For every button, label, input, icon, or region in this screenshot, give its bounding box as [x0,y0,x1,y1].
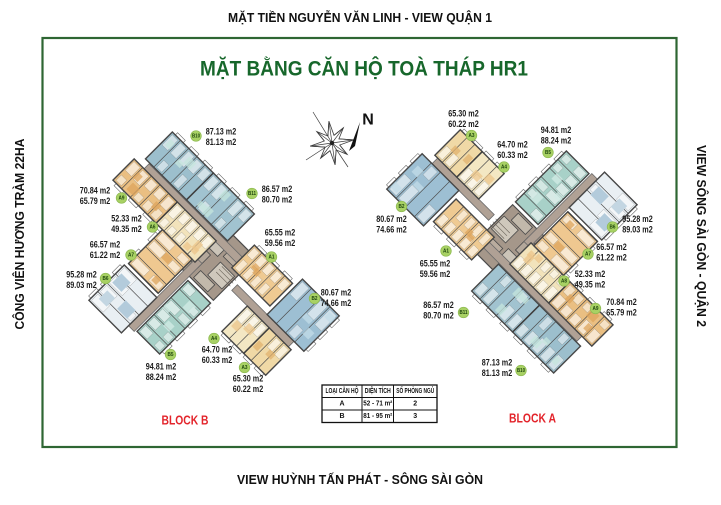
svg-text:59.56 m2: 59.56 m2 [420,269,451,279]
svg-text:49.35 m2: 49.35 m2 [111,224,142,234]
svg-text:64.70 m2: 64.70 m2 [497,140,528,150]
svg-text:94.81 m2: 94.81 m2 [541,125,572,135]
svg-text:74.66 m2: 74.66 m2 [321,298,352,308]
svg-text:49.35 m2: 49.35 m2 [575,280,606,290]
svg-text:A4: A4 [501,165,507,171]
svg-text:88.24 m2: 88.24 m2 [541,136,572,146]
svg-text:70.84 m2: 70.84 m2 [606,297,637,307]
svg-text:80.70 m2: 80.70 m2 [262,195,293,205]
svg-text:80.67 m2: 80.67 m2 [321,288,352,298]
svg-text:61.22 m2: 61.22 m2 [596,253,627,263]
svg-text:65.30 m2: 65.30 m2 [448,109,479,119]
svg-text:66.57 m2: 66.57 m2 [596,242,627,252]
svg-text:65.79 m2: 65.79 m2 [606,308,637,318]
svg-text:N: N [362,112,374,129]
svg-text:65.79 m2: 65.79 m2 [80,196,111,206]
svg-text:60.22 m2: 60.22 m2 [448,119,479,129]
svg-text:95.28 m2: 95.28 m2 [622,214,653,224]
svg-text:52 - 71 m²: 52 - 71 m² [363,401,393,408]
svg-text:DIỆN TÍCH: DIỆN TÍCH [365,386,391,395]
svg-text:B6: B6 [103,276,109,282]
svg-text:64.70 m2: 64.70 m2 [202,345,233,355]
svg-text:A4: A4 [211,336,217,342]
svg-text:60.33 m2: 60.33 m2 [497,150,528,160]
svg-text:81.13 m2: 81.13 m2 [206,137,237,147]
svg-text:80.67 m2: 80.67 m2 [376,214,407,224]
svg-text:65.55 m2: 65.55 m2 [420,259,451,269]
svg-text:B11: B11 [248,191,256,197]
svg-text:LOẠI CĂN HỘ: LOẠI CĂN HỘ [326,386,359,395]
svg-text:60.33 m2: 60.33 m2 [202,355,233,365]
svg-text:65.55 m2: 65.55 m2 [265,228,296,238]
svg-text:65.30 m2: 65.30 m2 [233,374,264,384]
svg-text:80.70 m2: 80.70 m2 [423,311,454,321]
svg-text:60.22 m2: 60.22 m2 [233,384,264,394]
svg-text:BLOCK A: BLOCK A [509,412,556,426]
svg-text:86.57 m2: 86.57 m2 [423,300,454,310]
svg-text:89.03 m2: 89.03 m2 [622,225,653,235]
svg-text:70.84 m2: 70.84 m2 [80,186,111,196]
svg-text:61.22 m2: 61.22 m2 [90,250,121,260]
svg-text:A7: A7 [585,252,591,258]
svg-text:A1: A1 [269,255,275,261]
svg-text:CÔNG VIÊN HƯƠNG TRÀM 22HA: CÔNG VIÊN HƯƠNG TRÀM 22HA [12,139,27,330]
svg-text:B11: B11 [460,310,468,316]
svg-text:A1: A1 [443,249,449,255]
svg-text:B2: B2 [399,204,405,210]
svg-text:A6: A6 [150,225,156,231]
svg-text:B10: B10 [517,368,525,374]
svg-text:74.66 m2: 74.66 m2 [376,225,407,235]
svg-text:86.57 m2: 86.57 m2 [262,184,293,194]
svg-text:VIEW HUỲNH TẤN PHÁT - SÔNG SÀI: VIEW HUỲNH TẤN PHÁT - SÔNG SÀI GÒN [237,472,483,487]
svg-text:81 - 95 m²: 81 - 95 m² [363,413,393,420]
svg-text:A9: A9 [119,196,125,202]
svg-text:52.33 m2: 52.33 m2 [111,214,142,224]
svg-text:A8: A8 [561,279,567,285]
svg-text:A7: A7 [128,253,134,259]
svg-text:3: 3 [413,413,417,420]
svg-text:A: A [339,401,344,408]
svg-text:66.57 m2: 66.57 m2 [90,240,121,250]
svg-text:88.24 m2: 88.24 m2 [146,372,177,382]
svg-text:B10: B10 [192,134,200,140]
svg-text:95.28 m2: 95.28 m2 [66,270,97,280]
svg-text:BLOCK B: BLOCK B [162,414,209,428]
svg-text:A3: A3 [242,365,248,371]
svg-text:87.13 m2: 87.13 m2 [206,127,237,137]
svg-text:87.13 m2: 87.13 m2 [482,358,513,368]
svg-text:A3: A3 [469,133,475,139]
svg-text:B2: B2 [312,296,318,302]
svg-text:MẶT TIỀN NGUYỄN VĂN LINH - VIE: MẶT TIỀN NGUYỄN VĂN LINH - VIEW QUẬN 1 [228,10,492,25]
svg-text:81.13 m2: 81.13 m2 [482,368,513,378]
svg-text:B: B [339,413,344,420]
svg-text:59.56 m2: 59.56 m2 [265,238,296,248]
svg-text:MẶT BẰNG CĂN HỘ TOÀ THÁP HR1: MẶT BẰNG CĂN HỘ TOÀ THÁP HR1 [200,57,528,81]
svg-text:VIEW SÔNG SÀI GÒN - QUẬN 2: VIEW SÔNG SÀI GÒN - QUẬN 2 [694,145,709,327]
svg-text:A9: A9 [593,306,599,312]
svg-text:B5: B5 [168,352,174,358]
svg-text:94.81 m2: 94.81 m2 [146,362,177,372]
svg-text:89.03 m2: 89.03 m2 [66,280,97,290]
svg-text:B6: B6 [610,225,616,231]
svg-text:52.33 m2: 52.33 m2 [575,269,606,279]
svg-text:B5: B5 [545,150,551,156]
svg-text:2: 2 [413,401,417,408]
